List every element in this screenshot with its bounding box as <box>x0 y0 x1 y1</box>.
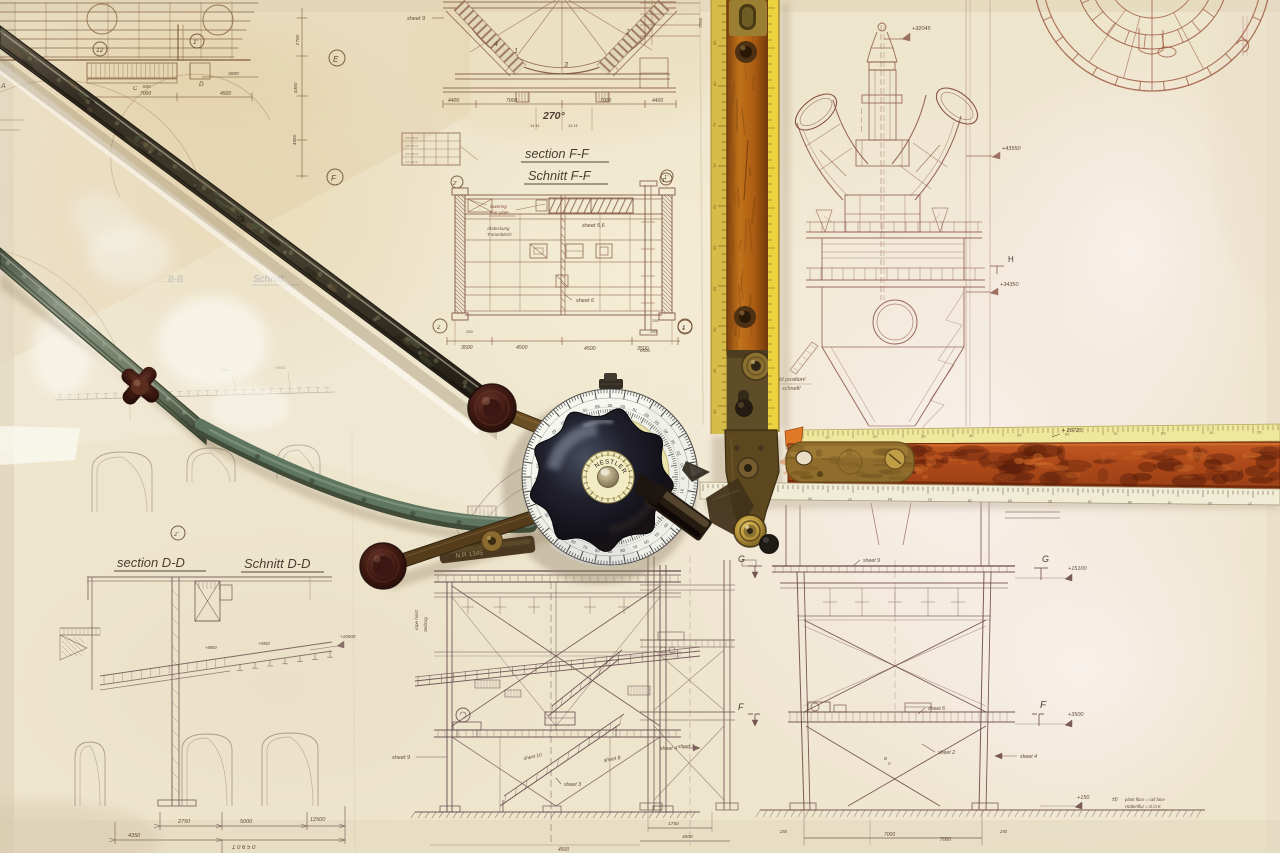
svg-text:5000: 5000 <box>240 819 253 825</box>
svg-text:sheet 9: sheet 9 <box>392 755 410 761</box>
svg-text:91: 91 <box>928 498 932 502</box>
svg-text:250: 250 <box>779 829 788 834</box>
svg-text:250: 250 <box>651 318 659 323</box>
svg-text:±0: ±0 <box>1112 797 1118 803</box>
svg-text:1: 1 <box>682 326 685 332</box>
svg-text:3000: 3000 <box>228 71 239 77</box>
svg-text:· ·: · · <box>238 648 243 654</box>
svg-text:+9350: +9350 <box>258 641 270 646</box>
svg-text:50: 50 <box>712 327 717 332</box>
svg-text:4500: 4500 <box>584 346 596 352</box>
svg-text:415 430 41: 415 430 41 <box>405 160 419 164</box>
svg-text:F: F <box>1040 700 1047 711</box>
svg-text:sheet 9: sheet 9 <box>863 558 880 564</box>
svg-text:+15100: +15100 <box>1068 566 1087 572</box>
svg-text:4400: 4400 <box>448 98 459 104</box>
svg-text:sheet 3: sheet 3 <box>564 782 581 788</box>
svg-text:C: C <box>133 86 138 92</box>
svg-text:250: 250 <box>999 829 1008 834</box>
svg-text:80: 80 <box>1161 431 1166 436</box>
svg-text:sheet 2: sheet 2 <box>938 750 955 756</box>
svg-text:20: 20 <box>873 434 878 439</box>
svg-text:2: 2 <box>625 29 630 36</box>
svg-text:415 430 41: 415 430 41 <box>405 144 419 148</box>
svg-text:lowering: lowering <box>490 204 507 209</box>
svg-text:B: B <box>884 756 887 761</box>
svg-text:82: 82 <box>1048 499 1052 503</box>
svg-text:73: 73 <box>1168 501 1172 505</box>
svg-text:830: 830 <box>143 84 151 89</box>
svg-text:+34350: +34350 <box>1000 282 1019 288</box>
svg-text:46: 46 <box>1128 500 1132 504</box>
svg-text:E: E <box>333 55 339 64</box>
svg-text:14 11: 14 11 <box>568 123 578 128</box>
svg-text:7000: 7000 <box>506 98 517 104</box>
svg-text:00: 00 <box>1208 501 1212 505</box>
svg-text:10: 10 <box>825 435 830 440</box>
svg-text:4500: 4500 <box>682 834 693 840</box>
svg-text:4950: 4950 <box>292 134 298 145</box>
svg-text:sheet 4: sheet 4 <box>1020 754 1037 760</box>
svg-text:14 11: 14 11 <box>530 123 540 128</box>
svg-text:G: G <box>738 554 745 564</box>
svg-text:37: 37 <box>848 497 852 501</box>
svg-text:10: 10 <box>1209 430 1214 435</box>
svg-text:Schnitt D-D: Schnitt D-D <box>244 556 310 571</box>
svg-text:2750: 2750 <box>295 34 301 46</box>
svg-text:19: 19 <box>1088 500 1092 504</box>
svg-text:D: D <box>199 81 204 88</box>
svg-text:sheet 1: sheet 1 <box>678 744 695 750</box>
svg-text:70: 70 <box>1113 431 1118 436</box>
svg-text:2750: 2750 <box>177 819 191 825</box>
svg-text:50: 50 <box>1017 432 1022 437</box>
svg-text:12: 12 <box>96 47 104 54</box>
svg-text:2': 2' <box>173 532 179 538</box>
svg-text:G: G <box>1042 554 1049 564</box>
svg-text:37: 37 <box>1248 502 1252 506</box>
svg-text:Schnitt F-F: Schnitt F-F <box>528 168 592 183</box>
svg-text:1 0 6 5 0: 1 0 6 5 0 <box>232 845 256 851</box>
svg-text:Seilzug: Seilzug <box>423 617 428 632</box>
svg-text:4: 4 <box>494 41 498 48</box>
svg-text:7000: 7000 <box>884 832 895 838</box>
svg-text:2: 2 <box>436 325 441 331</box>
svg-text:4400: 4400 <box>652 98 663 104</box>
svg-text:+150: +150 <box>1077 795 1090 801</box>
svg-text:3: 3 <box>564 62 568 69</box>
svg-text:R: R <box>888 761 891 766</box>
svg-text:00: 00 <box>808 496 812 500</box>
svg-text:H: H <box>1008 255 1014 264</box>
svg-text:28: 28 <box>968 498 972 502</box>
svg-text:A: A <box>1237 468 1244 478</box>
svg-text:55: 55 <box>1008 499 1012 503</box>
svg-text:1750: 1750 <box>668 821 679 827</box>
svg-text:90: 90 <box>607 403 612 408</box>
svg-text:1': 1' <box>193 39 199 46</box>
svg-text:sheet 5,6: sheet 5,6 <box>582 223 606 229</box>
svg-text:+8850: +8850 <box>205 645 217 650</box>
svg-text:60: 60 <box>712 245 717 250</box>
svg-text:sheet 4: sheet 4 <box>660 746 677 752</box>
svg-text:4500: 4500 <box>516 345 528 351</box>
svg-text:4350: 4350 <box>293 82 299 93</box>
svg-text:4500: 4500 <box>558 847 569 853</box>
svg-text:Tränenblech: Tränenblech <box>487 232 512 237</box>
svg-text:4350: 4350 <box>128 833 141 839</box>
svg-text:+3500: +3500 <box>1068 712 1084 718</box>
svg-text:55: 55 <box>712 286 717 291</box>
svg-text:40: 40 <box>969 433 974 438</box>
svg-text:F: F <box>738 702 744 712</box>
svg-text:45: 45 <box>712 368 717 373</box>
svg-text:64: 64 <box>888 497 892 501</box>
svg-text:250: 250 <box>465 329 473 334</box>
svg-text:tear plate: tear plate <box>490 210 509 215</box>
svg-text:65: 65 <box>712 204 717 209</box>
svg-text:40: 40 <box>712 409 717 414</box>
svg-text:7000: 7000 <box>140 91 151 97</box>
svg-text:415 430 41: 415 430 41 <box>405 152 419 156</box>
svg-text:Old position!: Old position! <box>775 377 806 383</box>
svg-text:30: 30 <box>921 434 926 439</box>
svg-text:sheet 6: sheet 6 <box>928 706 945 712</box>
svg-text:1: 1 <box>514 48 518 55</box>
svg-text:80: 80 <box>712 81 717 86</box>
svg-text:section D-D: section D-D <box>117 555 185 570</box>
svg-text:rope hoist: rope hoist <box>414 609 419 630</box>
svg-text:Abdeckung: Abdeckung <box>486 226 510 231</box>
svg-text:section F-F: section F-F <box>525 146 590 161</box>
svg-text:415 430 41: 415 430 41 <box>405 136 419 140</box>
svg-text:+43550: +43550 <box>1002 146 1021 152</box>
svg-text:sheet 9: sheet 9 <box>407 16 425 22</box>
svg-text:+ 26725: + 26725 <box>1062 428 1083 434</box>
svg-text:7000: 7000 <box>698 17 703 28</box>
svg-text:3500: 3500 <box>461 345 473 351</box>
svg-text:7000: 7000 <box>940 837 951 843</box>
svg-text:+32045: +32045 <box>912 26 931 32</box>
svg-text:Hüttenflur = S.O.K: Hüttenflur = S.O.K <box>1125 804 1162 809</box>
svg-text:70: 70 <box>712 163 717 168</box>
svg-text:85: 85 <box>712 40 717 45</box>
svg-text:7000: 7000 <box>600 98 611 104</box>
svg-text:12500: 12500 <box>310 817 326 823</box>
svg-text:20: 20 <box>1257 429 1262 434</box>
svg-text:75: 75 <box>712 122 717 127</box>
svg-text:4500: 4500 <box>220 91 231 97</box>
svg-text:plant floor = rail face: plant floor = rail face <box>1124 797 1165 802</box>
svg-text:sheet 6: sheet 6 <box>576 298 595 304</box>
svg-text:+10500: +10500 <box>340 634 356 639</box>
svg-text:6500: 6500 <box>640 348 651 353</box>
